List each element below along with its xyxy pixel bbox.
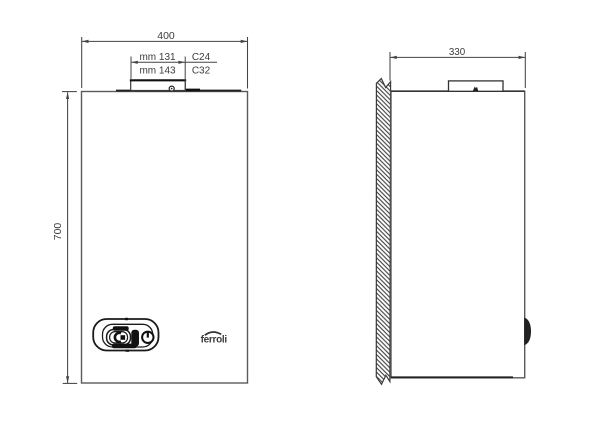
svg-text:700: 700 <box>52 223 64 241</box>
svg-text:C32: C32 <box>192 66 211 77</box>
svg-text:C24: C24 <box>192 52 211 63</box>
svg-text:mm 143: mm 143 <box>139 66 176 77</box>
svg-text:ferroli: ferroli <box>201 335 228 346</box>
svg-text:mm 131: mm 131 <box>139 52 176 63</box>
svg-text:330: 330 <box>449 47 466 58</box>
svg-text:400: 400 <box>157 30 175 42</box>
